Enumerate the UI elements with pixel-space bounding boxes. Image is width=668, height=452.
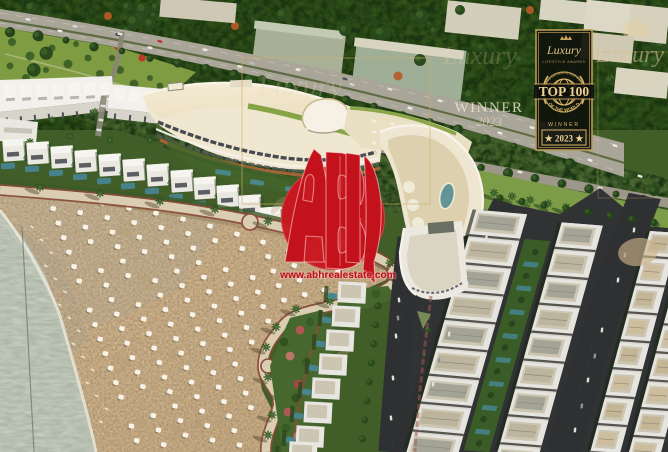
svg-text:Luxury: Luxury: [257, 70, 344, 103]
svg-text:Luxury: Luxury: [546, 43, 582, 57]
svg-text:www.abhrealestate.com: www.abhrealestate.com: [279, 270, 396, 281]
svg-text:AWARDS: AWARDS: [617, 83, 655, 89]
svg-text:★ 2023 ★: ★ 2023 ★: [545, 134, 585, 144]
svg-text:WINNER: WINNER: [548, 122, 580, 128]
svg-text:Luxury: Luxury: [595, 42, 664, 68]
svg-text:Luxury: Luxury: [442, 41, 517, 70]
svg-text:2023: 2023: [476, 114, 503, 129]
svg-text:LIFESTYLE AWARDS: LIFESTYLE AWARDS: [543, 60, 586, 64]
svg-text:TOP 100: TOP 100: [539, 84, 590, 99]
svg-text:LIFESTYLE: LIFESTYLE: [611, 74, 661, 80]
